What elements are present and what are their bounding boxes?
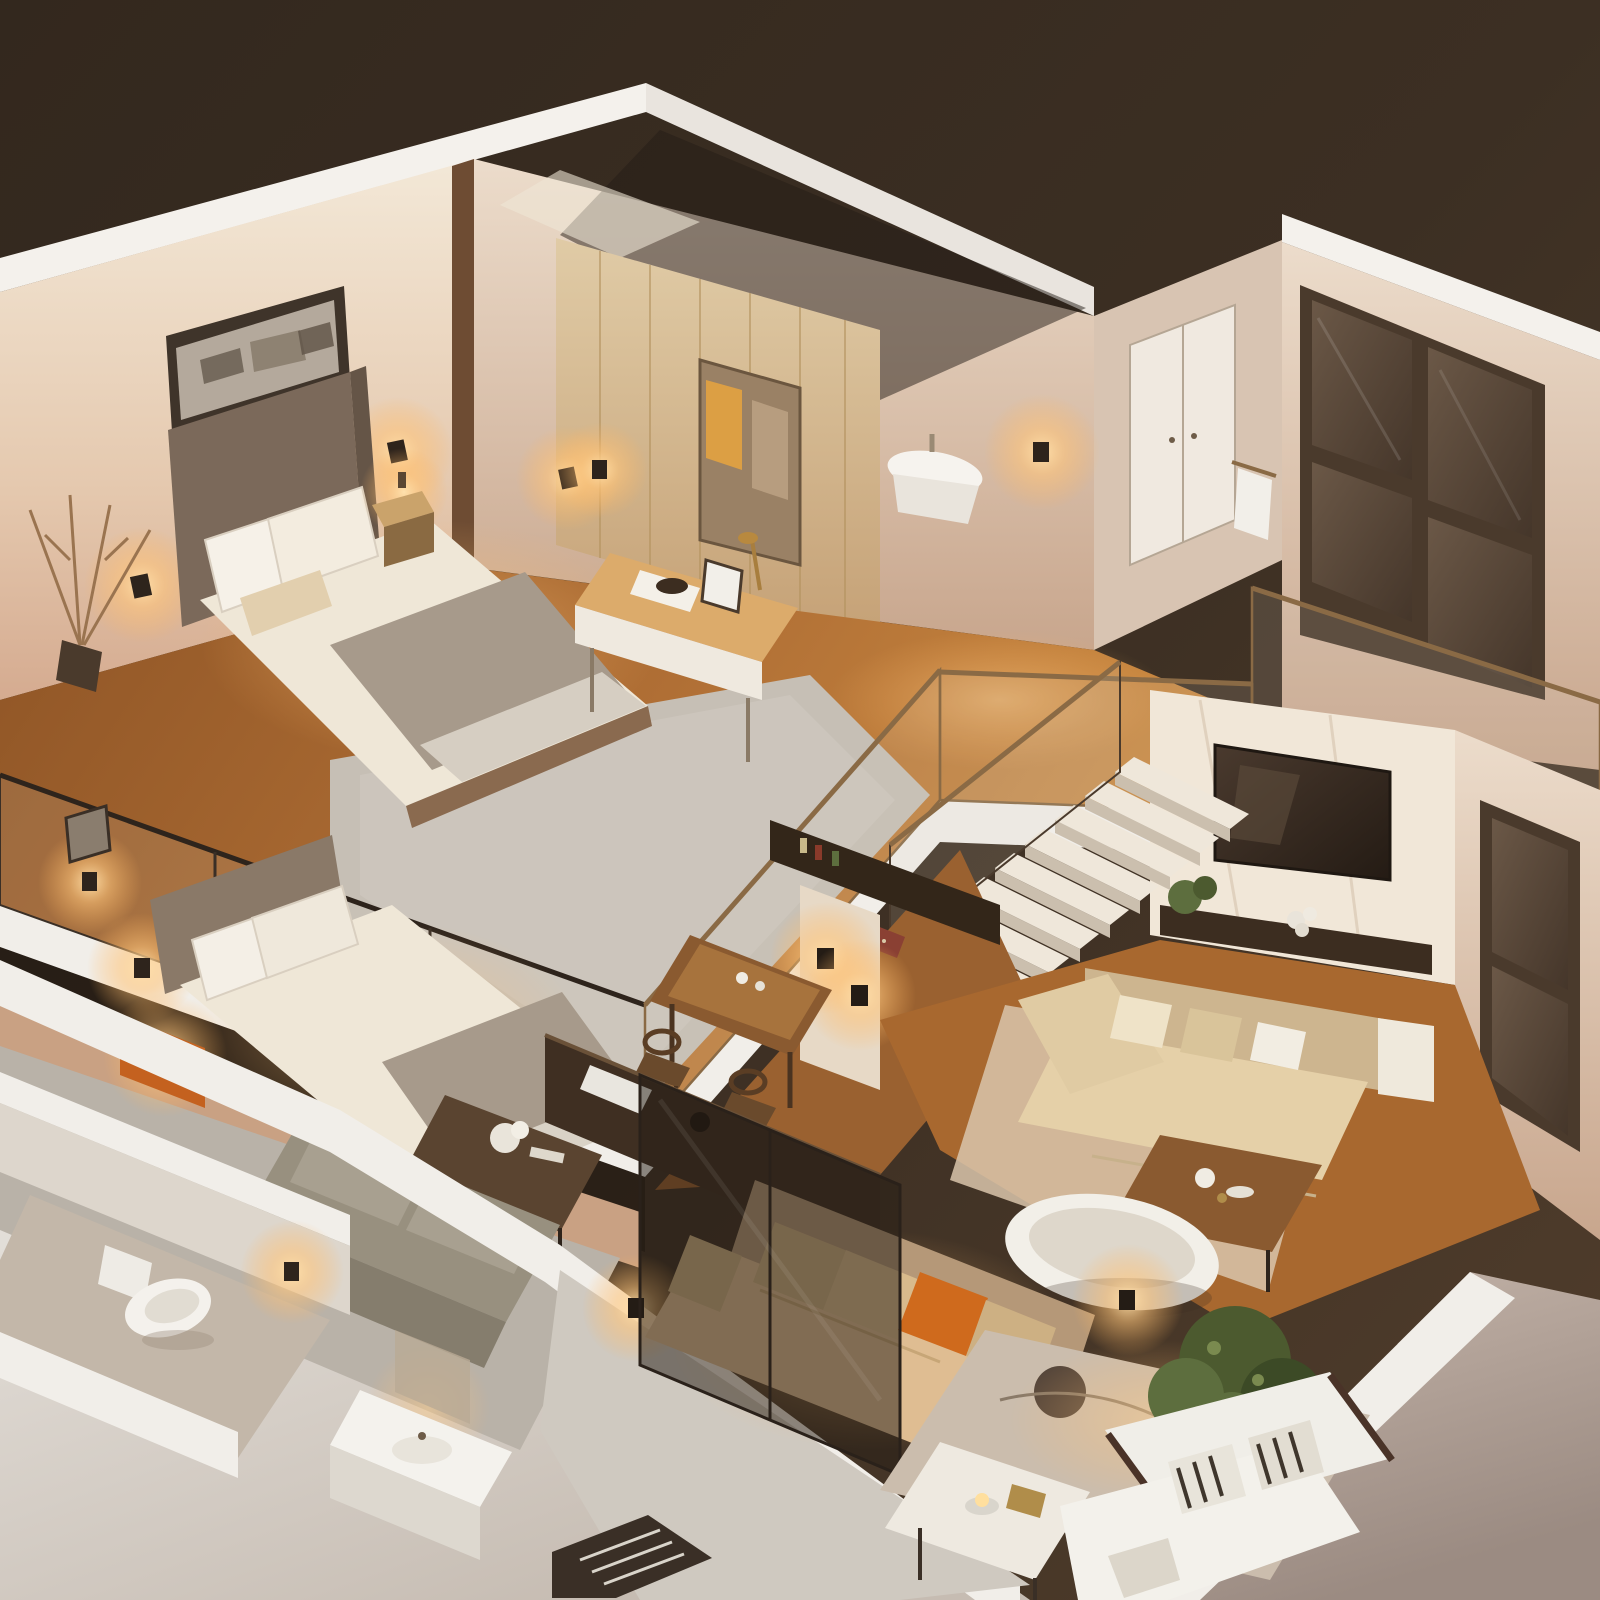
mirror-reflection	[752, 400, 788, 500]
cup	[755, 981, 765, 991]
sconce-fixture	[284, 1262, 299, 1281]
isometric-house-render	[0, 0, 1600, 1600]
lamp-body	[398, 472, 406, 488]
white-flowers	[1303, 907, 1317, 921]
photo-frame	[702, 560, 742, 612]
basin	[392, 1436, 452, 1464]
brass-item	[1217, 1193, 1227, 1203]
sconce-fixture	[592, 460, 607, 479]
candle-flame-glow	[975, 1493, 989, 1507]
cup	[736, 972, 748, 984]
render-canvas	[0, 0, 1600, 1600]
leaf-highlight	[1207, 1341, 1221, 1355]
toilet-shadow	[142, 1330, 214, 1350]
wood-corner-pillar	[452, 159, 474, 574]
sconce-fixture	[82, 872, 97, 891]
desk-bowl	[656, 578, 688, 594]
towel	[1234, 468, 1272, 540]
lamp-shade	[738, 532, 758, 544]
door-handle	[1169, 437, 1175, 443]
plate	[1226, 1186, 1254, 1198]
bottle	[815, 845, 822, 860]
leaf-highlight	[1252, 1374, 1264, 1386]
sconce-fixture	[851, 985, 868, 1006]
mat-dot	[882, 939, 886, 943]
white-flowers	[1295, 923, 1309, 937]
faucet	[418, 1432, 426, 1440]
sconce-fixture	[1119, 1290, 1135, 1310]
bowl	[1195, 1168, 1215, 1188]
bottle	[800, 838, 807, 853]
door-handle	[1191, 433, 1197, 439]
sconce-fixture	[134, 958, 150, 978]
mirror-lamp-reflection	[706, 380, 742, 470]
bottle	[832, 851, 839, 866]
sconce-fixture	[1033, 442, 1049, 462]
sofa-arm	[1378, 1018, 1434, 1102]
flower-puff	[511, 1121, 529, 1139]
